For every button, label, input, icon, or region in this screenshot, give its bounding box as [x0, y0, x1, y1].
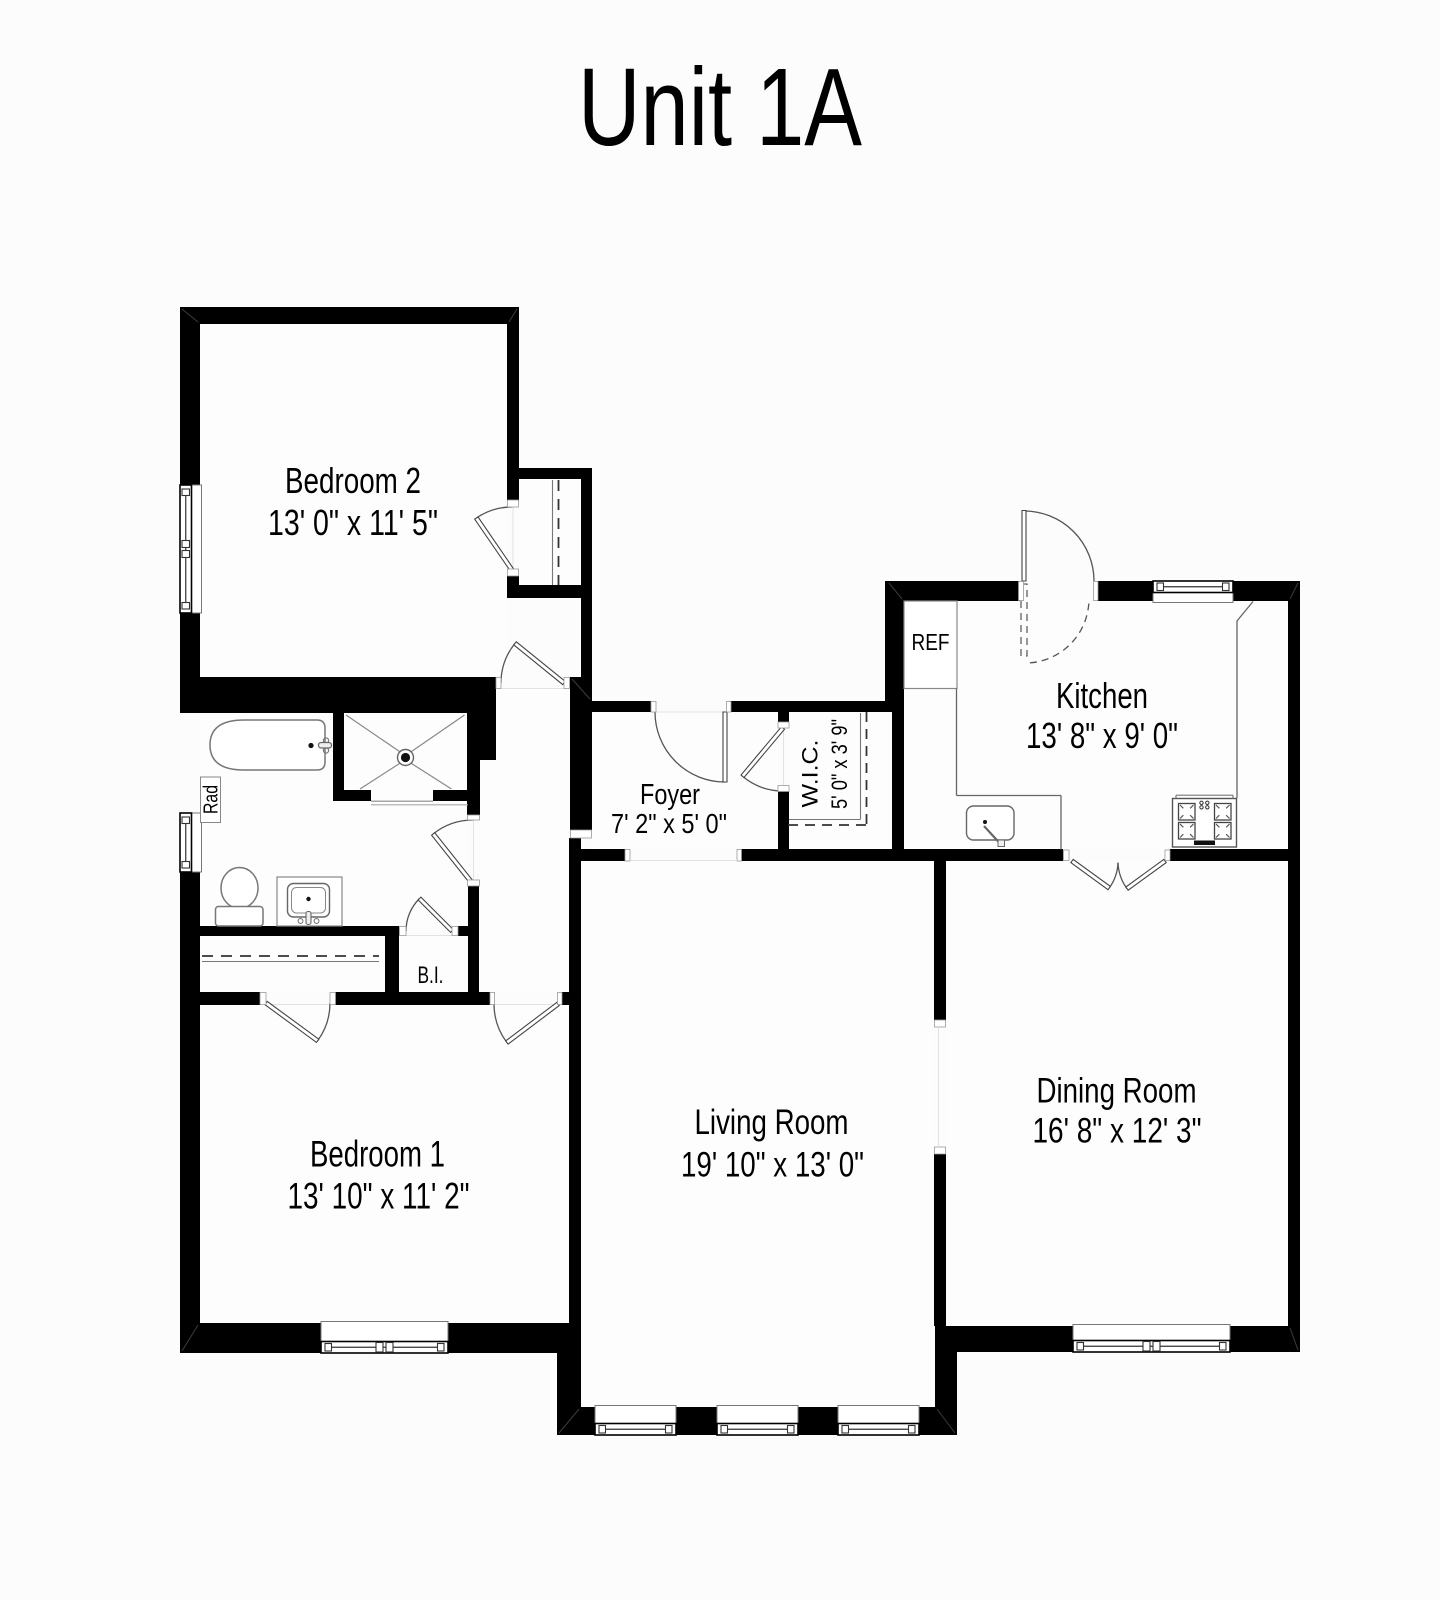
- svg-text:Bedroom 2: Bedroom 2: [285, 460, 421, 501]
- svg-text:Bedroom 1: Bedroom 1: [310, 1134, 445, 1175]
- svg-text:B.I.: B.I.: [418, 962, 444, 989]
- svg-text:13' 0" x 11' 5": 13' 0" x 11' 5": [268, 502, 438, 543]
- svg-text:5' 0" x 3' 9": 5' 0" x 3' 9": [827, 719, 852, 809]
- svg-text:W.I.C.: W.I.C.: [798, 740, 823, 808]
- svg-text:13' 8" x 9' 0": 13' 8" x 9' 0": [1026, 715, 1178, 756]
- svg-text:REF: REF: [912, 629, 950, 655]
- svg-text:Unit 1A: Unit 1A: [578, 46, 862, 169]
- svg-text:Kitchen: Kitchen: [1056, 675, 1148, 716]
- svg-text:Foyer: Foyer: [640, 779, 700, 811]
- svg-text:Living Room: Living Room: [695, 1103, 849, 1142]
- svg-text:Rad: Rad: [201, 785, 223, 814]
- svg-text:16' 8" x 12' 3": 16' 8" x 12' 3": [1033, 1111, 1202, 1151]
- svg-text:7' 2" x 5' 0": 7' 2" x 5' 0": [611, 808, 727, 839]
- svg-text:13' 10" x 11' 2": 13' 10" x 11' 2": [288, 1176, 470, 1217]
- svg-text:Dining Room: Dining Room: [1037, 1071, 1197, 1111]
- svg-text:19' 10" x 13' 0": 19' 10" x 13' 0": [681, 1146, 864, 1185]
